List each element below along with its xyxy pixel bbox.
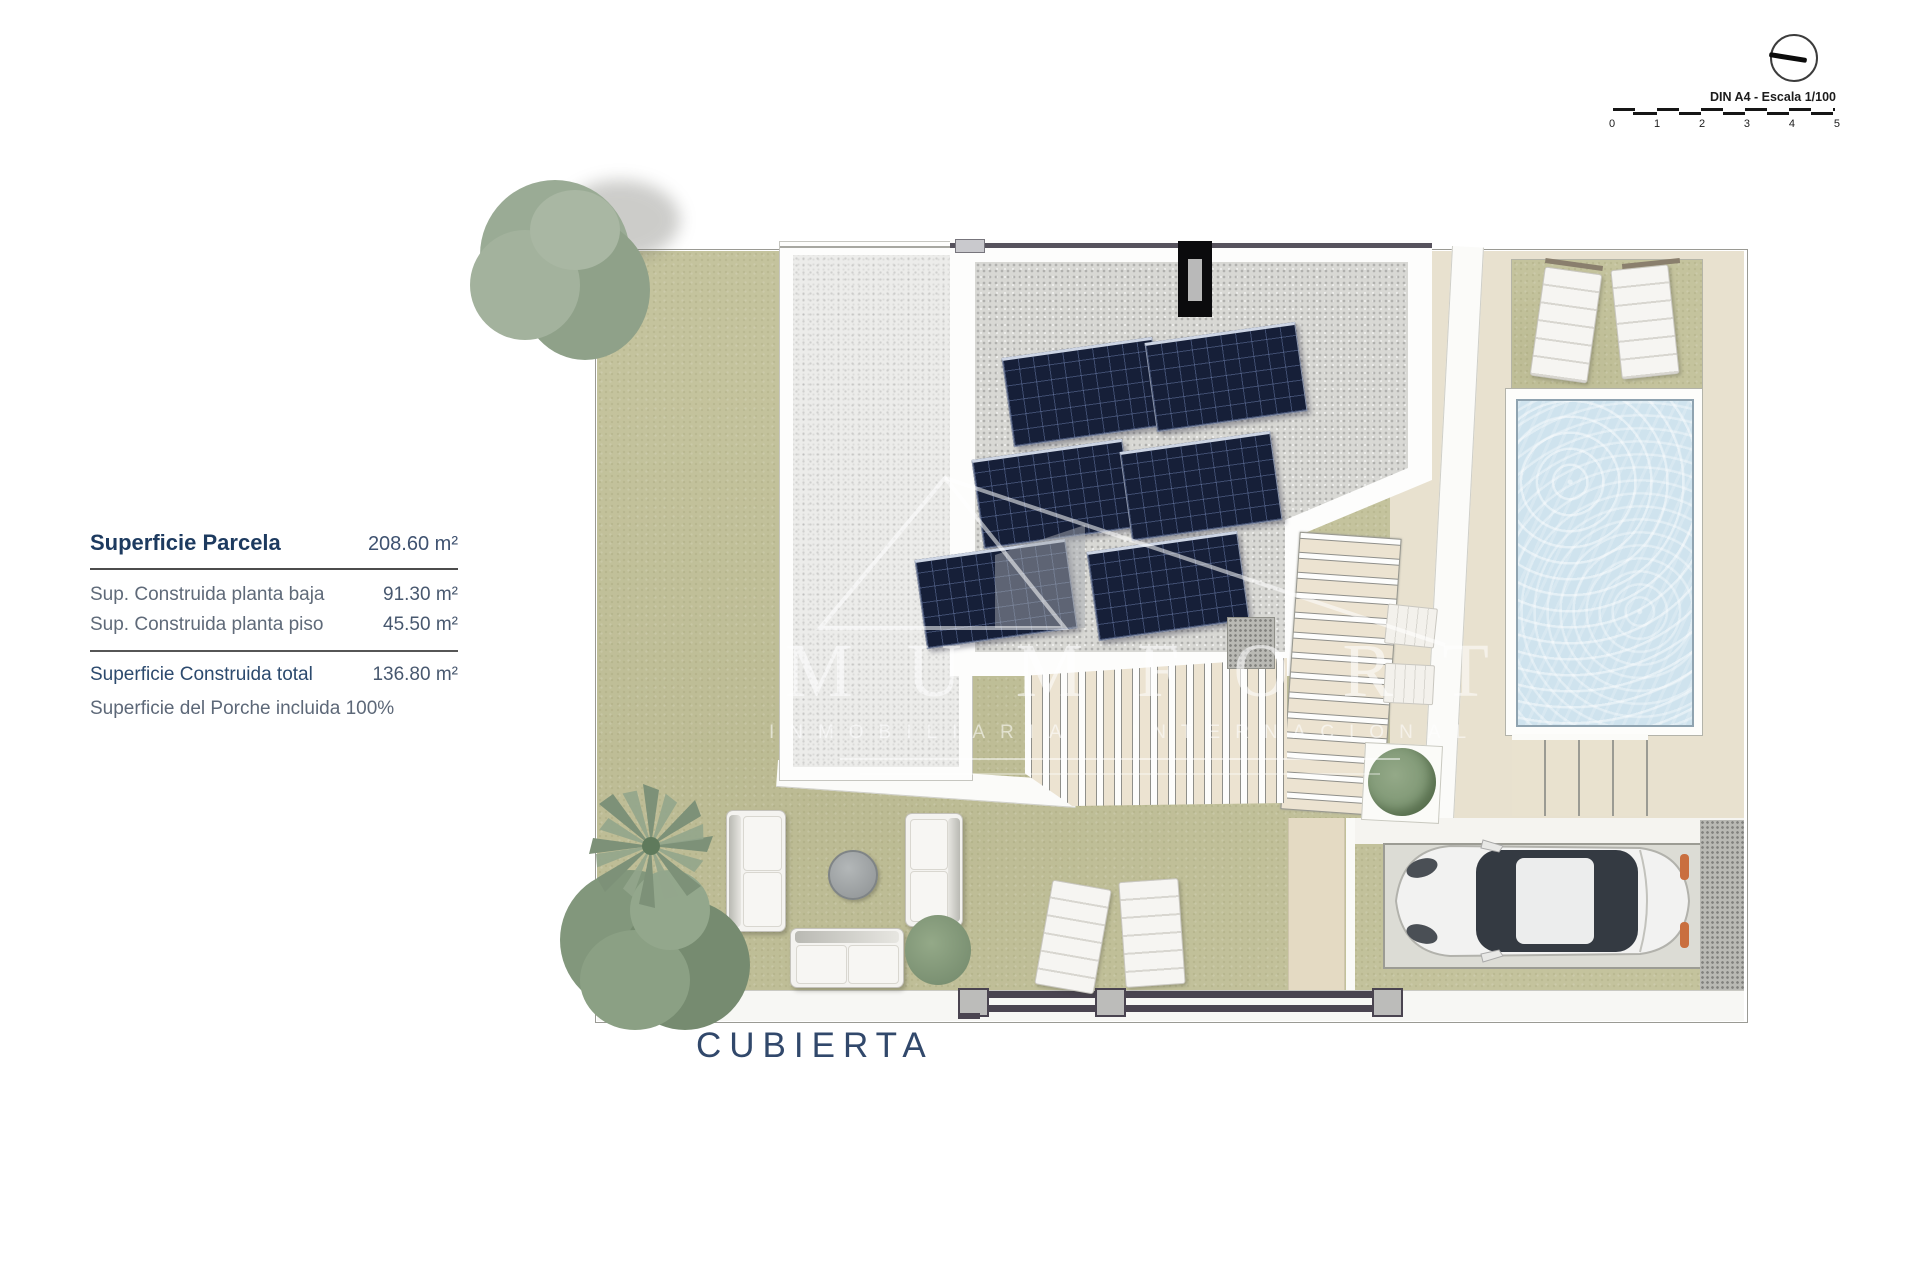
info-row-value: 91.30 m² bbox=[383, 584, 458, 606]
scale-tick: 4 bbox=[1789, 118, 1795, 130]
info-row-value: 45.50 m² bbox=[383, 614, 458, 636]
info-divider bbox=[90, 568, 458, 570]
fence-rail bbox=[966, 991, 1402, 998]
info-row-label: Sup. Construida planta baja bbox=[90, 584, 325, 606]
sun-lounger bbox=[1118, 878, 1185, 988]
scale-tick: 2 bbox=[1699, 118, 1705, 130]
north-indicator-icon bbox=[1770, 34, 1818, 82]
sun-lounger bbox=[1384, 603, 1438, 648]
scale-caption: DIN A4 - Escala 1/100 bbox=[1710, 90, 1836, 104]
palm-tree bbox=[583, 778, 719, 914]
sun-lounger bbox=[1610, 264, 1679, 379]
scale-tick-labels: 0 1 2 3 4 5 bbox=[1609, 118, 1840, 130]
side-terrace bbox=[793, 255, 959, 767]
scale-tick: 5 bbox=[1834, 118, 1840, 130]
fence-rail bbox=[966, 1005, 1402, 1012]
plan-title: CUBIERTA bbox=[696, 1026, 934, 1066]
scale-tick: 3 bbox=[1744, 118, 1750, 130]
sofa bbox=[905, 813, 963, 927]
info-divider bbox=[90, 650, 458, 652]
roof-corner-tab bbox=[955, 239, 985, 253]
scale-ruler bbox=[1613, 108, 1835, 115]
sun-lounger bbox=[1383, 663, 1435, 706]
pergola-vertical-louvers bbox=[1025, 658, 1287, 806]
chimney-flue bbox=[1188, 259, 1202, 301]
pool-steps bbox=[1512, 734, 1648, 816]
garden-path bbox=[1288, 818, 1345, 990]
bush bbox=[1368, 748, 1436, 816]
fence-post bbox=[1095, 988, 1126, 1017]
tree bbox=[460, 150, 690, 380]
info-row-label: Sup. Construida planta piso bbox=[90, 614, 323, 636]
fence-step bbox=[958, 1013, 980, 1019]
info-title-value: 208.60 m² bbox=[368, 533, 458, 556]
gravel-patch bbox=[1228, 618, 1274, 668]
north-needle bbox=[1769, 52, 1807, 63]
fence-post bbox=[1372, 988, 1403, 1017]
scale-tick: 0 bbox=[1609, 118, 1615, 130]
info-note: Superficie del Porche incluida 100% bbox=[90, 698, 458, 720]
coffee-table bbox=[828, 850, 878, 900]
car bbox=[1388, 836, 1698, 966]
fence bbox=[958, 988, 1410, 1020]
scale-bar: DIN A4 - Escala 1/100 0 1 2 3 4 5 bbox=[1600, 30, 1850, 140]
info-total-value: 136.80 m² bbox=[372, 664, 458, 686]
pool bbox=[1516, 399, 1694, 727]
path-edge bbox=[1346, 818, 1355, 990]
info-panel: Superficie Parcela 208.60 m² Sup. Constr… bbox=[90, 530, 458, 720]
bush bbox=[905, 915, 971, 985]
gravel-strip bbox=[1700, 820, 1744, 990]
sofa bbox=[790, 928, 904, 988]
info-title-label: Superficie Parcela bbox=[90, 530, 281, 556]
terrace-top-line bbox=[780, 246, 972, 248]
info-total-label: Superficie Construida total bbox=[90, 664, 313, 686]
scale-tick: 1 bbox=[1654, 118, 1660, 130]
